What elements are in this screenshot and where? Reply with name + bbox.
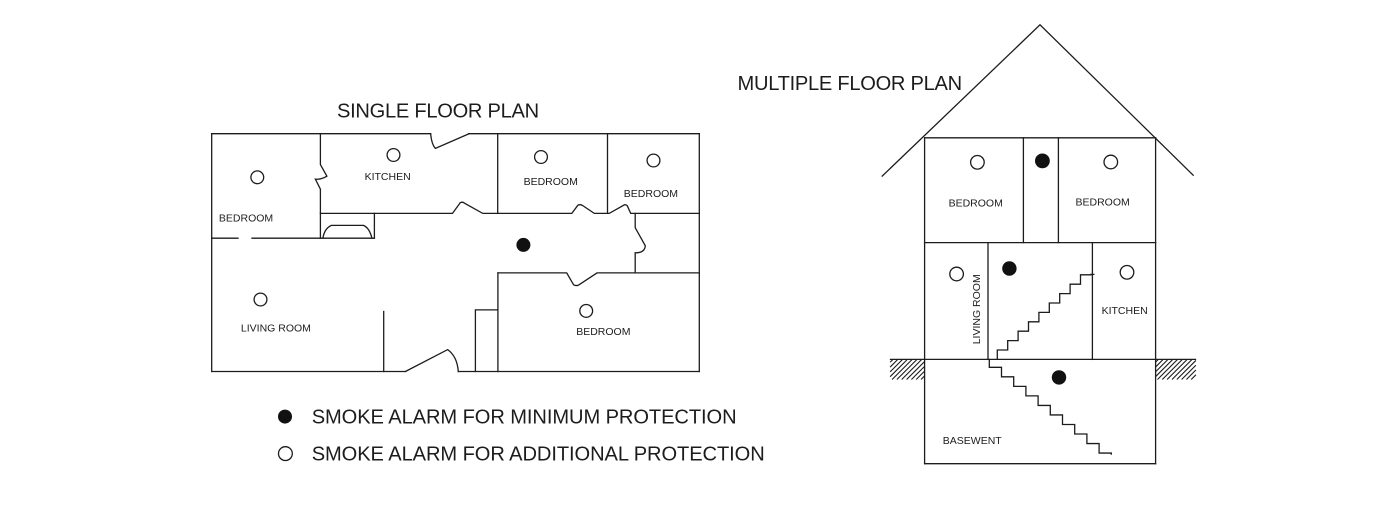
svg-text:BASEWENT: BASEWENT <box>943 435 1003 447</box>
svg-text:BEDROOM: BEDROOM <box>219 212 273 224</box>
svg-text:BEDROOM: BEDROOM <box>576 326 630 338</box>
svg-text:MULTIPLE FLOOR PLAN: MULTIPLE FLOOR PLAN <box>738 73 962 95</box>
svg-text:KITCHEN: KITCHEN <box>1102 305 1148 317</box>
svg-text:BEDROOM: BEDROOM <box>1076 197 1130 209</box>
svg-text:SINGLE FLOOR PLAN: SINGLE FLOOR PLAN <box>337 101 539 123</box>
svg-text:SMOKE ALARM FOR MINIMUM PROTEC: SMOKE ALARM FOR MINIMUM PROTECTION <box>312 407 737 429</box>
svg-text:KITCHEN: KITCHEN <box>365 171 411 183</box>
svg-text:BEDROOM: BEDROOM <box>949 197 1003 209</box>
svg-text:BEDROOM: BEDROOM <box>524 176 578 188</box>
svg-text:LIVING ROOM: LIVING ROOM <box>971 274 983 344</box>
svg-text:SMOKE ALARM FOR ADDITIONAL PRO: SMOKE ALARM FOR ADDITIONAL PROTECTION <box>312 444 765 466</box>
svg-text:LIVING ROOM: LIVING ROOM <box>241 322 311 334</box>
svg-text:BEDROOM: BEDROOM <box>624 188 678 200</box>
